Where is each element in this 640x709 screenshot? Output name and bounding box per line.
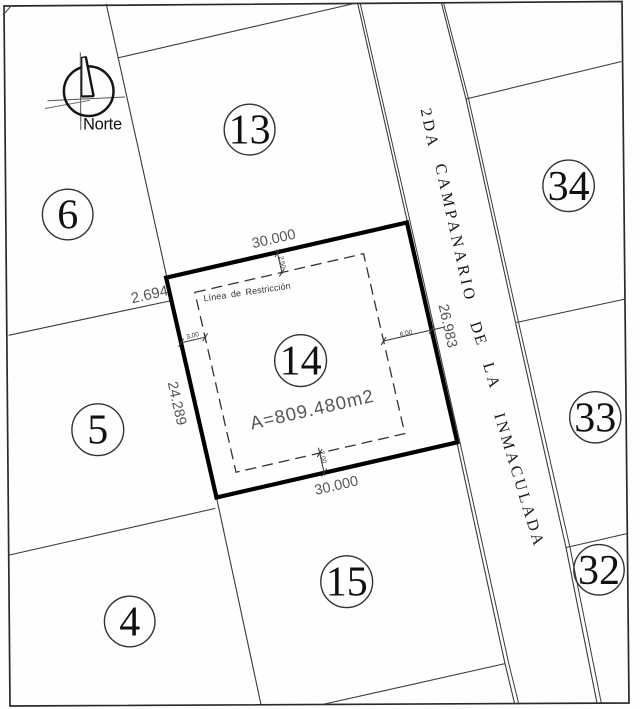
- svg-text:13: 13: [229, 108, 271, 154]
- svg-text:33: 33: [574, 395, 616, 441]
- svg-text:5: 5: [87, 408, 108, 454]
- svg-text:32: 32: [578, 548, 620, 594]
- svg-text:Norte: Norte: [83, 116, 122, 134]
- svg-text:34: 34: [548, 164, 590, 210]
- svg-text:15: 15: [326, 560, 368, 606]
- svg-text:14: 14: [280, 339, 322, 385]
- svg-text:6: 6: [57, 193, 78, 239]
- svg-text:4: 4: [119, 600, 140, 646]
